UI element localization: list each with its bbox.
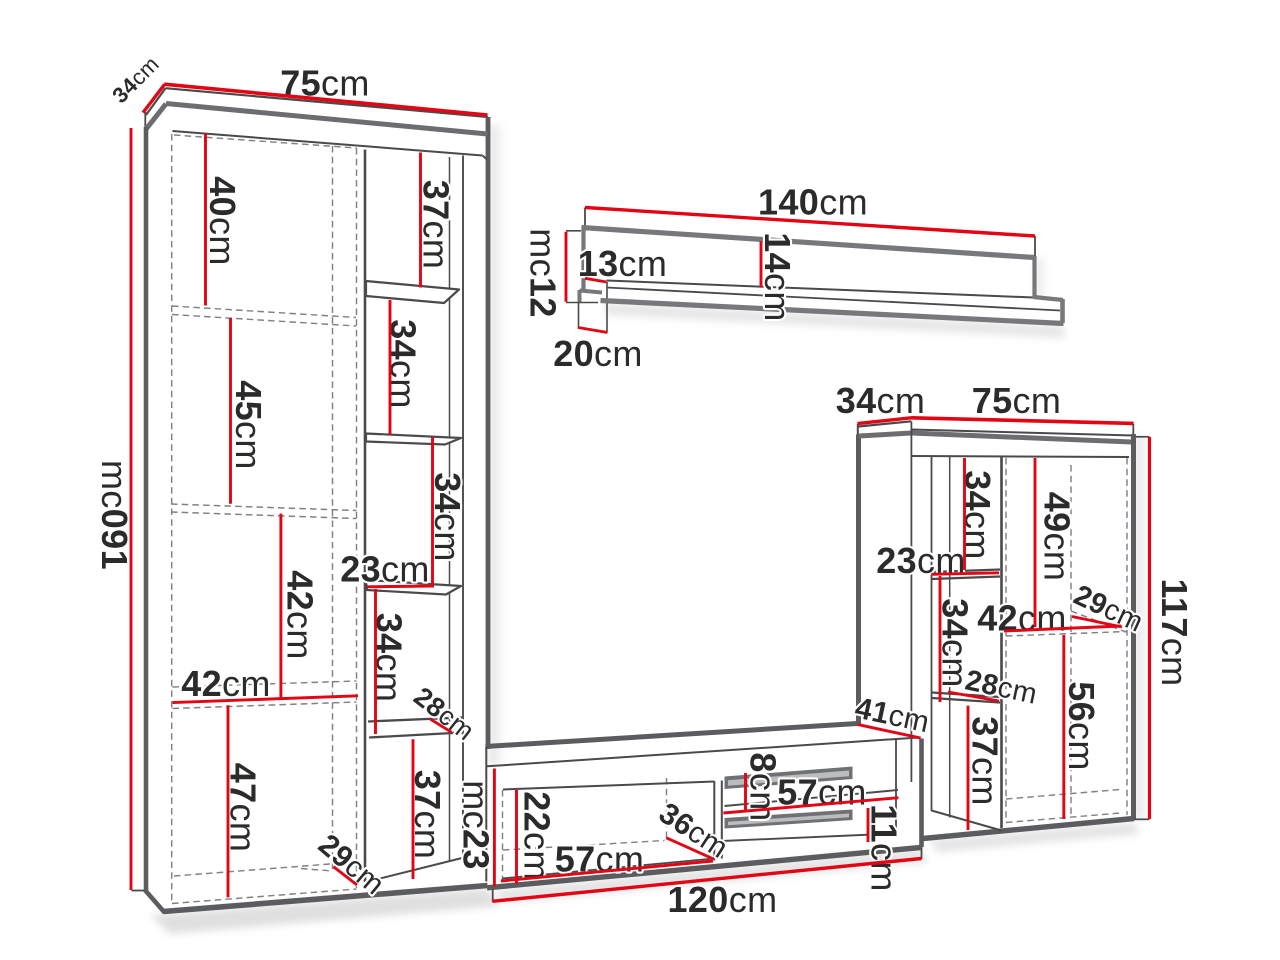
svg-text:mc23: mc23 [455,780,496,870]
svg-text:40cm: 40cm [202,176,243,266]
svg-text:42cm: 42cm [977,598,1067,639]
svg-text:140cm: 140cm [758,182,868,223]
svg-text:mc12: mc12 [522,228,563,318]
svg-text:42cm: 42cm [279,570,320,660]
svg-text:14cm: 14cm [757,232,798,322]
svg-text:56cm: 56cm [1061,681,1102,771]
svg-text:20cm: 20cm [553,333,643,374]
svg-text:42cm: 42cm [181,663,271,704]
svg-text:22cm: 22cm [516,791,557,881]
svg-text:49cm: 49cm [1036,492,1077,582]
svg-text:34cm: 34cm [836,380,926,421]
svg-text:75cm: 75cm [972,380,1062,421]
svg-text:117cm: 117cm [1154,578,1195,686]
svg-text:37cm: 37cm [964,716,1005,806]
svg-text:120cm: 120cm [667,879,777,920]
svg-text:45cm: 45cm [228,380,269,470]
svg-text:mc091: mc091 [94,460,135,570]
svg-text:11cm: 11cm [863,804,904,892]
svg-text:23cm: 23cm [340,549,430,590]
